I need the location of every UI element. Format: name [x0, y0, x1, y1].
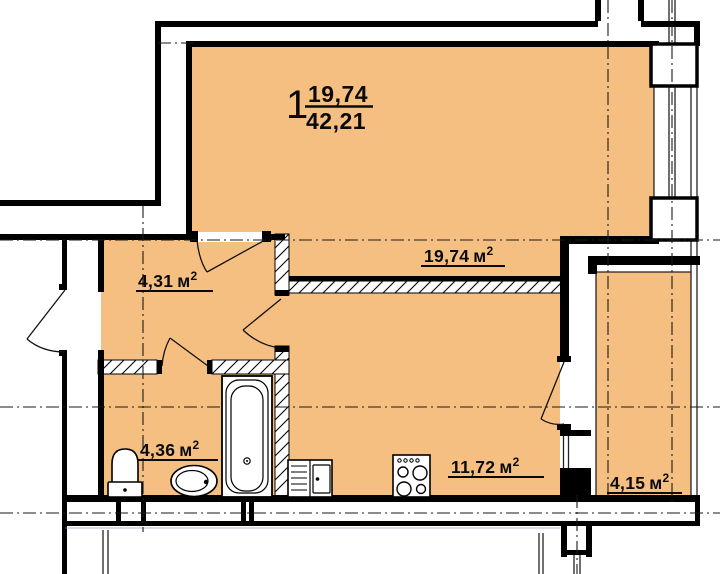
label-bath-area: 4,36м2	[140, 438, 200, 460]
wall-segment	[62, 350, 67, 574]
door-jamb	[275, 290, 289, 296]
wall-segment	[155, 21, 161, 205]
wall-segment	[560, 468, 591, 497]
door-jamb	[557, 356, 571, 362]
wall-segment	[65, 521, 700, 526]
partition-hatch-hall-kitchen-upper	[275, 234, 289, 295]
wall-segment	[249, 495, 254, 526]
wall-segment	[241, 495, 246, 526]
wall-segment	[641, 21, 700, 27]
pilaster	[651, 198, 697, 240]
wall-segment	[62, 234, 67, 290]
toilet-button	[123, 488, 127, 492]
pilaster	[651, 44, 697, 86]
wall-segment	[595, 0, 601, 21]
living-area-fraction: 19,74	[308, 81, 368, 107]
rooms-count-label: 1	[286, 83, 308, 127]
label-living-area: 19,74м2	[424, 244, 494, 266]
partition-hatch-bath-left	[98, 360, 157, 374]
label-hall-area: 4,31м2	[138, 269, 198, 291]
wall-segment	[0, 200, 161, 206]
kitchen-sink-bowl	[313, 465, 330, 493]
wall-segment	[186, 41, 659, 47]
wall-segment	[560, 430, 591, 436]
label-balcony-area: 4,15м2	[610, 471, 670, 493]
partition-hatch-living-kitchen	[275, 281, 568, 293]
kitchen-sink-dot	[316, 477, 320, 481]
opening-balcony-door	[560, 362, 569, 424]
wash-basin-inner	[176, 471, 208, 492]
opening-hall-bath	[162, 360, 207, 374]
wall-segment	[155, 21, 598, 27]
kitchen-window-gap	[560, 436, 591, 468]
wash-basin-drain	[204, 480, 208, 484]
wall-segment	[638, 0, 644, 21]
wall-segment	[98, 350, 104, 497]
wall-segment	[560, 244, 569, 358]
wall-segment	[186, 41, 192, 236]
wall-segment	[98, 234, 104, 292]
floor-plan-drawing: 1 19,74 42,21 19,74м2 4,31м2 4,36м2 11,7…	[0, 0, 720, 574]
room-balcony-fill	[596, 272, 691, 498]
partition-kitchen-top-cap	[281, 276, 561, 281]
door-jamb	[157, 360, 162, 374]
bathtub	[222, 376, 272, 497]
door-jamb	[207, 360, 212, 374]
door-jamb	[59, 284, 67, 290]
toilet-bowl	[112, 449, 138, 484]
wall-segment	[116, 498, 121, 523]
room-hall-fill	[101, 236, 283, 366]
label-kitchen-area: 11,72м2	[451, 455, 520, 477]
door-jamb	[59, 350, 67, 356]
bathtub-drain-dot	[246, 460, 248, 462]
opening-hall-kitchen	[277, 295, 289, 346]
total-area-fraction: 42,21	[306, 108, 366, 134]
partition-hatch-bath-right	[212, 360, 289, 374]
floor-plan: 1 19,74 42,21 19,74м2 4,31м2 4,36м2 11,7…	[0, 0, 720, 574]
wall-segment	[588, 265, 597, 274]
wall-segment	[588, 256, 700, 265]
wall-segment	[695, 495, 700, 526]
wall-segment	[65, 495, 700, 502]
